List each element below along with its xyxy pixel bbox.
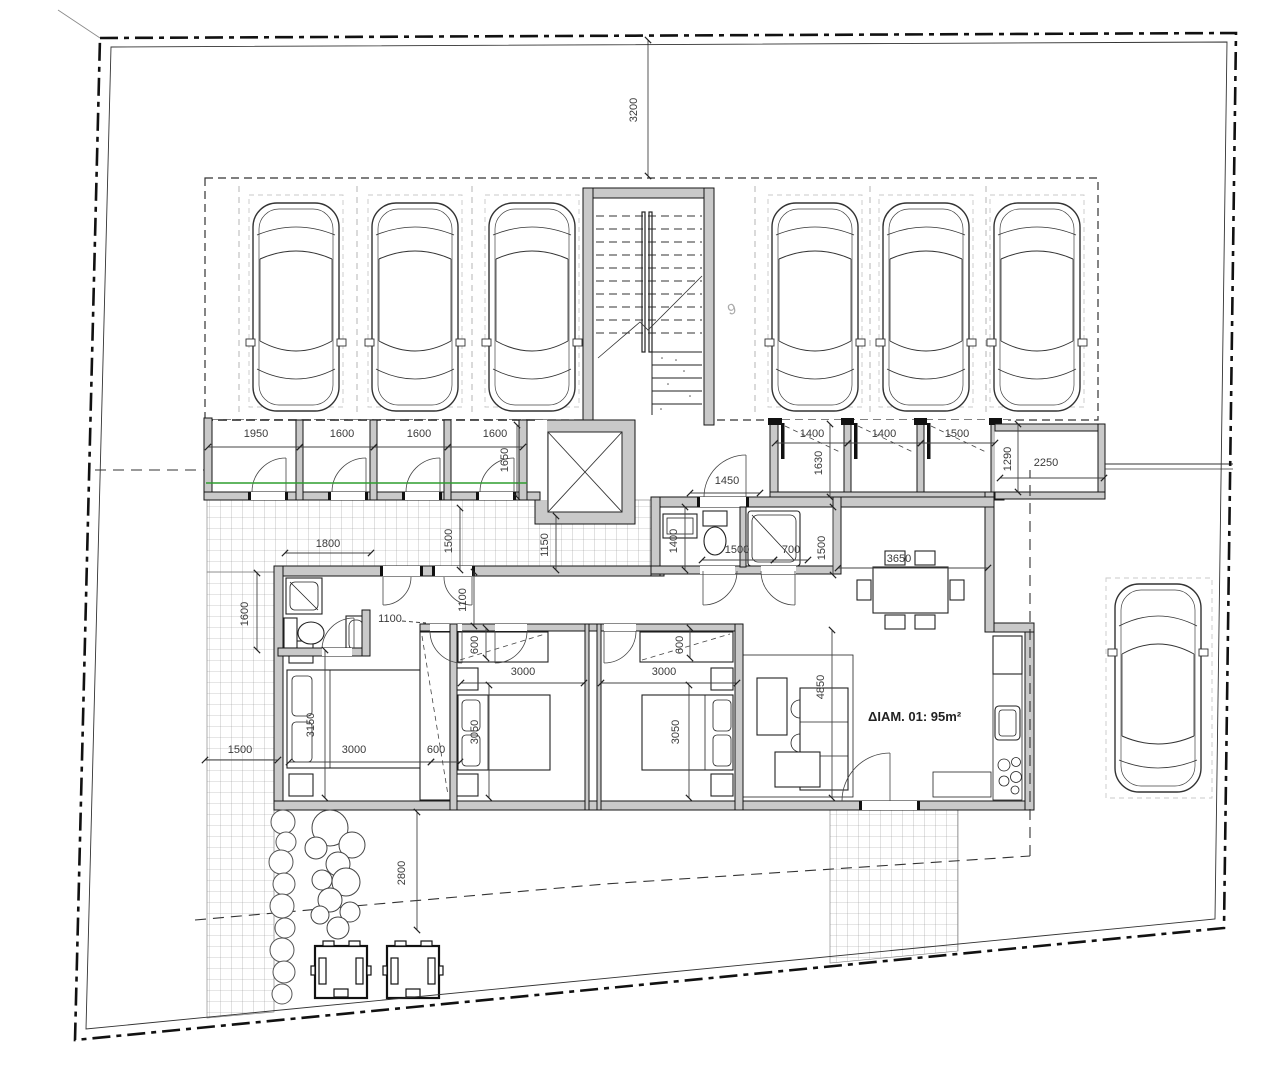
dim-label: 1500 <box>816 536 828 560</box>
parked-car <box>482 203 582 411</box>
floor-plan-page: 9 <box>0 0 1280 1073</box>
dim-label: 1600 <box>330 428 354 440</box>
dim-label: 600 <box>427 744 445 756</box>
dim-label: 1450 <box>715 475 739 487</box>
dim-label: 3050 <box>469 720 481 744</box>
ac-units <box>311 941 443 998</box>
dim-label: 2800 <box>396 861 408 885</box>
dim-label: 3000 <box>342 744 366 756</box>
dim-label: 1400 <box>800 428 824 440</box>
dim-label: 4850 <box>815 675 827 699</box>
parked-car <box>1108 584 1208 792</box>
elevator-shaft <box>535 420 635 524</box>
dim-label: 1500 <box>443 529 455 553</box>
dim-label: 3200 <box>628 98 640 122</box>
dim-label: 1650 <box>499 448 511 472</box>
dim-label: 600 <box>674 636 686 654</box>
parked-car <box>876 203 976 411</box>
dim-label: 3650 <box>887 553 911 565</box>
dim-label: 1100 <box>457 588 469 612</box>
dim-label: 1500 <box>228 744 252 756</box>
dim-label: 3150 <box>305 713 317 737</box>
trees <box>305 810 365 939</box>
dim-label: 1500 <box>945 428 969 440</box>
dim-label: 1400 <box>872 428 896 440</box>
dim-label: 3050 <box>670 720 682 744</box>
dim-label: 1800 <box>316 538 340 550</box>
parked-car <box>246 203 346 411</box>
parked-car <box>987 203 1087 411</box>
dim-label: 3000 <box>511 666 535 678</box>
dim-label: 1600 <box>483 428 507 440</box>
dim-label: 1100 <box>378 613 402 625</box>
parked-car <box>765 203 865 411</box>
dim-label: 1600 <box>407 428 431 440</box>
dim-label: 1500 <box>725 544 749 556</box>
parked-car <box>365 203 465 411</box>
dim-label: 1950 <box>244 428 268 440</box>
dim-label: 1150 <box>539 533 551 557</box>
storage-row-right <box>768 418 1233 500</box>
dim-label: 1400 <box>668 529 680 553</box>
side-parking <box>1106 578 1212 798</box>
dim-label: 1630 <box>813 451 825 475</box>
dim-label: 1290 <box>1002 447 1014 471</box>
parking-space-number: 9 <box>726 300 738 319</box>
dim-label: 1600 <box>239 602 251 626</box>
staircase <box>583 188 714 425</box>
dim-label: 2250 <box>1034 457 1058 469</box>
dim-label: 3000 <box>652 666 676 678</box>
floor-plan-drawing: 9 <box>0 0 1280 1073</box>
dim-label: 600 <box>469 636 481 654</box>
dim-label: 700 <box>782 544 800 556</box>
apartment-label: ΔΙΑΜ. 01: 95m² <box>868 709 962 724</box>
